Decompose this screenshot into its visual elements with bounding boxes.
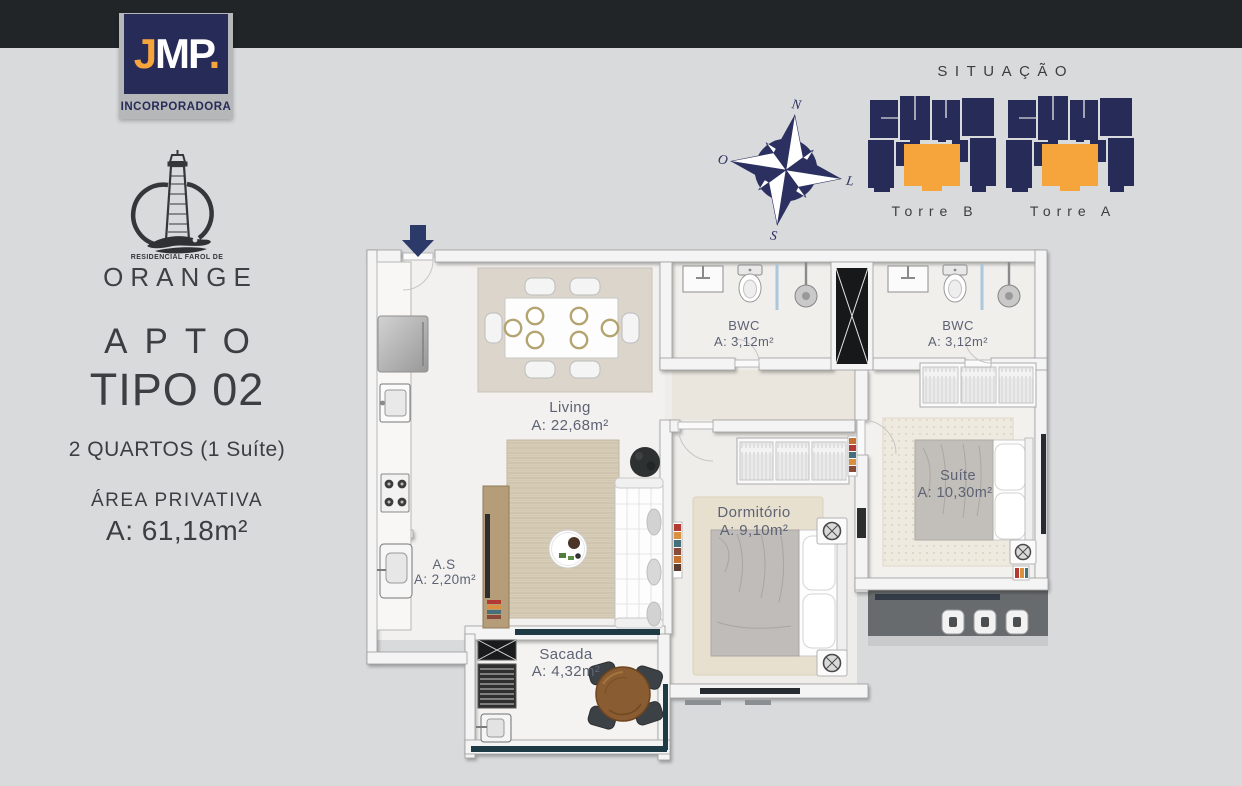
tower-b-footprint <box>866 90 998 194</box>
laundry-sink <box>377 544 412 598</box>
compass-label-west: O <box>717 151 729 167</box>
jmp-logo: JMP. INCORPORADORA <box>119 13 233 119</box>
living-label: Living <box>549 399 591 416</box>
sacada-shaft <box>478 640 516 660</box>
compass-label-east: L <box>844 173 855 189</box>
tower-b-diagram: Torre B <box>866 90 998 219</box>
servico-label: A.S <box>433 557 456 572</box>
dormitorio-wardrobe <box>737 438 849 484</box>
floor-plan: Living A: 22,68m² BWC A: 3,12m² BWC A: 3… <box>365 222 1055 770</box>
kitchen-sink <box>380 384 410 422</box>
tower-a-diagram: Torre A <box>1004 90 1136 219</box>
bwc2-area: A: 3,12m² <box>928 334 988 349</box>
living-area: A: 22,68m² <box>531 417 608 434</box>
suite-window <box>1041 434 1046 534</box>
dormitorio-label: Dormitório <box>717 504 790 521</box>
situacao-title: SITUAÇÃO <box>862 63 1142 80</box>
servico-area: A: 2,20m² <box>414 572 476 587</box>
jmp-letters-mp: MP <box>155 30 209 77</box>
residencial-tagline: RESIDENCIAL FAROL DE <box>52 254 302 261</box>
dormitorio-speaker-top <box>817 518 847 544</box>
entry-arrow <box>402 225 434 257</box>
tower-b-label: Torre B <box>866 203 998 219</box>
bwc1-toilet <box>738 265 762 302</box>
private-area-value: A: 61,18m² <box>27 515 327 547</box>
dormitorio-speaker-bottom <box>817 650 847 676</box>
corridor-fixtures <box>942 610 1028 634</box>
hall-bookshelf <box>848 436 857 476</box>
coffee-table <box>549 530 587 568</box>
jmp-dot: . <box>209 30 219 77</box>
sacada-label: Sacada <box>539 646 593 663</box>
bwc1-vanity <box>683 266 723 292</box>
private-area-label: ÁREA PRIVATIVA <box>27 490 327 512</box>
apto-title: APTO <box>27 322 327 362</box>
bwc1-label: BWC <box>728 318 760 333</box>
dormitorio-area: A: 9,10m² <box>720 522 789 539</box>
shaft <box>831 262 873 370</box>
tv <box>485 514 490 598</box>
apto-info-block: APTO TIPO 02 2 QUARTOS (1 Suíte) ÁREA PR… <box>27 322 327 547</box>
jmp-subtitle: INCORPORADORA <box>119 101 233 113</box>
hall-floor <box>672 370 855 420</box>
compass-label-north: N <box>790 96 803 113</box>
tower-a-footprint <box>1004 90 1136 194</box>
residencial-name: ORANGE <box>52 262 302 293</box>
suite-books <box>1013 566 1029 580</box>
sacada-railing-glass <box>471 746 667 752</box>
suite-speaker <box>1010 540 1036 564</box>
compass-star <box>722 106 850 234</box>
jmp-wordmark: JMP. <box>134 33 219 75</box>
stove <box>381 474 409 512</box>
suite-label: Suíte <box>940 468 976 484</box>
bwc2-label: BWC <box>942 318 974 333</box>
lighthouse-tower <box>166 166 189 240</box>
dormitorio-window <box>700 688 800 694</box>
jmp-logo-mark: JMP. <box>124 14 228 94</box>
apto-rooms: 2 QUARTOS (1 Suíte) <box>27 438 327 462</box>
bwc1-area: A: 3,12m² <box>714 334 774 349</box>
sacada-table <box>596 667 650 721</box>
bwc2-toilet <box>943 265 967 302</box>
sacada-sink <box>476 714 511 742</box>
sacada-vent-grill <box>478 664 516 708</box>
tower-a-label: Torre A <box>1004 203 1136 219</box>
apto-type: TIPO 02 <box>27 364 327 416</box>
sofa <box>615 478 663 628</box>
suite-wardrobe <box>920 363 1036 407</box>
bwc2-vanity <box>888 266 928 292</box>
sacada-sliding-door <box>515 629 660 635</box>
suite-area: A: 10,30m² <box>918 485 993 501</box>
fridge <box>378 316 428 372</box>
lighthouse-logo <box>125 150 230 256</box>
dormitorio-bed <box>711 528 847 658</box>
living-rug <box>507 440 619 618</box>
jmp-letter-j: J <box>134 30 155 77</box>
dormitorio-bookshelf <box>673 522 682 578</box>
sacada-area: A: 4,32m² <box>532 663 601 680</box>
suite-wall-tv <box>857 508 866 538</box>
plant <box>630 447 660 477</box>
